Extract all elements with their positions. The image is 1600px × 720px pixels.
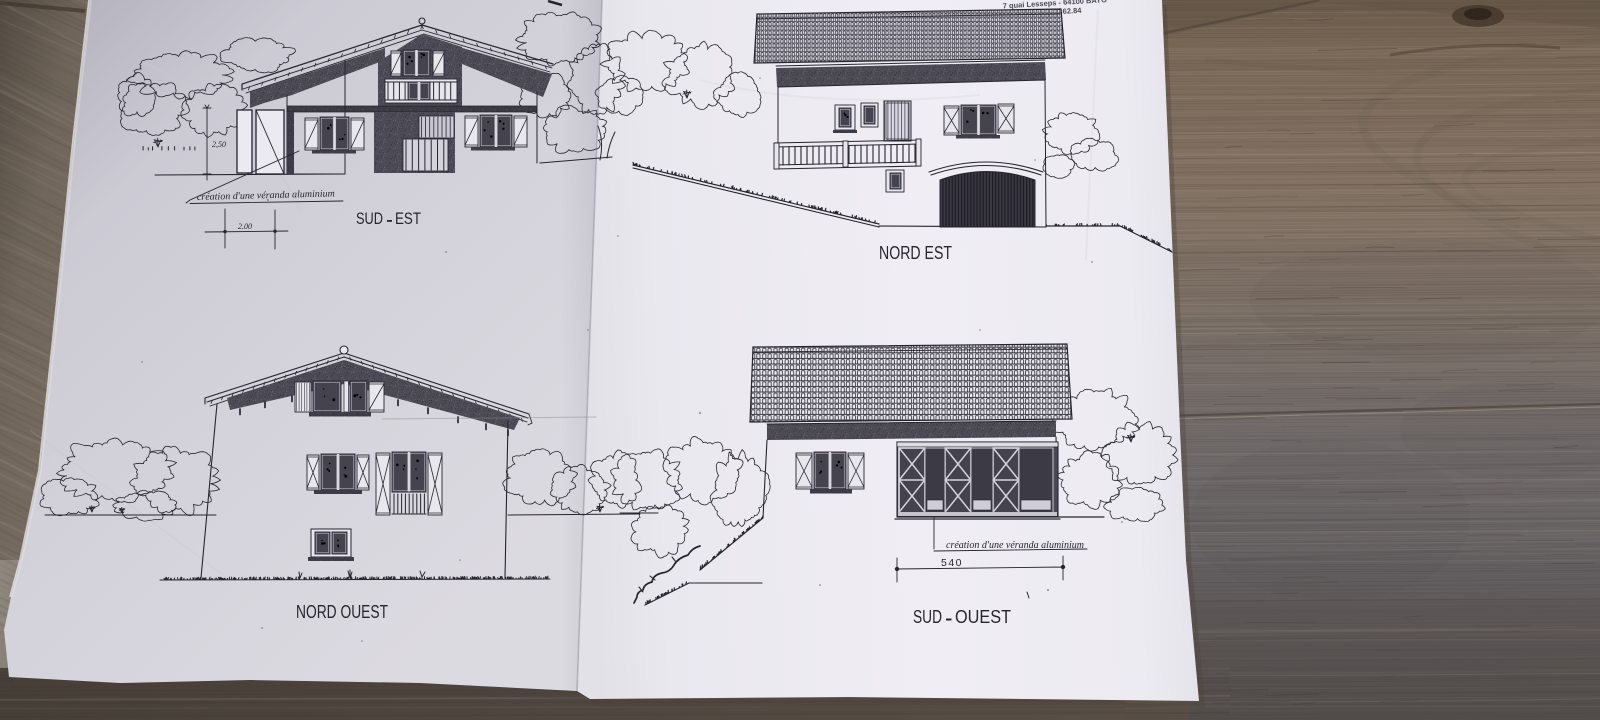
svg-text:NORD EST: NORD EST — [879, 243, 952, 263]
svg-text:540: 540 — [941, 557, 963, 569]
svg-text:SUD: SUD — [356, 209, 383, 228]
svg-text:EST: EST — [395, 209, 421, 228]
svg-text:NORD OUEST: NORD OUEST — [296, 602, 388, 622]
svg-text:OUEST: OUEST — [955, 606, 1011, 627]
svg-text:2,50: 2,50 — [212, 140, 226, 149]
svg-text:SUD: SUD — [913, 606, 942, 627]
svg-text:2.00: 2.00 — [238, 222, 252, 231]
